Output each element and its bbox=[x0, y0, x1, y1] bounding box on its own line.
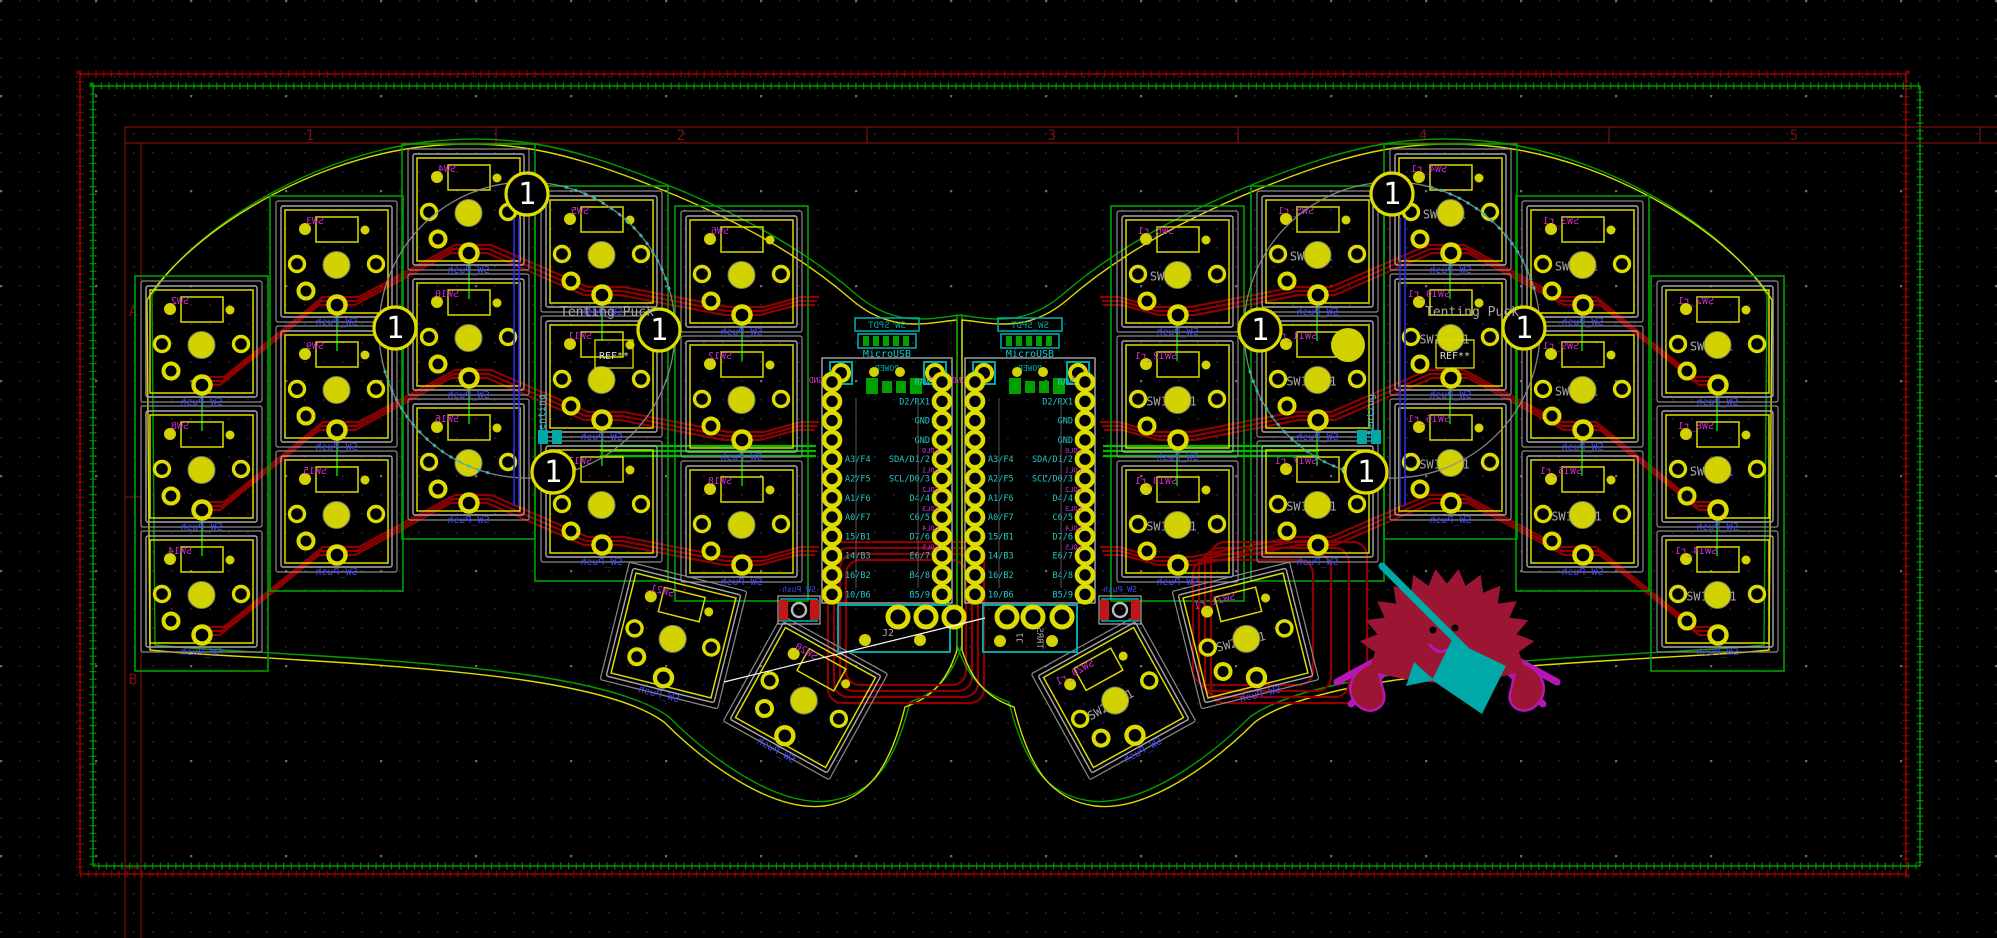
trrs-label: TRRS bbox=[1034, 627, 1044, 649]
key-ref-label: SW4_r1 bbox=[1411, 164, 1447, 175]
mcu-pin-label: E6/7 bbox=[910, 552, 930, 562]
key-ref-label: SW12 bbox=[708, 351, 732, 362]
tenting-puck-label: Tenting Puck bbox=[560, 305, 654, 320]
key-ref-label: SW10 bbox=[435, 289, 459, 300]
net-label: COL5 bbox=[922, 544, 939, 552]
net-label: COL4 bbox=[1065, 524, 1082, 532]
tenting-vertical-text: tenting bbox=[1366, 394, 1377, 436]
key-value-label: SW_Push bbox=[1296, 557, 1338, 568]
mcu-pin-label: GND bbox=[1058, 436, 1073, 446]
puck-hole-number: 1 bbox=[386, 311, 404, 346]
puck-mounting-hole[interactable]: 1 bbox=[506, 173, 548, 215]
microusb-label: MicroUSB bbox=[1006, 349, 1054, 360]
mcu-pin-label: A1/F6 bbox=[988, 494, 1014, 504]
key-ref-label: SW2 bbox=[171, 296, 189, 307]
tenting-puck-label: Tenting Puck bbox=[1425, 305, 1519, 320]
puck-mounting-hole[interactable]: 1 bbox=[1345, 451, 1387, 493]
mcu-pin-label: 15/B1 bbox=[845, 532, 871, 542]
net-label: COL1 bbox=[1065, 467, 1082, 475]
sheet-zone-number: 2 bbox=[677, 128, 685, 144]
key-ref-label: SW9_r1 bbox=[1543, 341, 1579, 352]
key-value-label: SW_Push bbox=[315, 567, 357, 578]
gnd-label: GND bbox=[809, 376, 824, 385]
mcu-pin-label: E6/7 bbox=[1053, 552, 1073, 562]
mcu-pin-label: 16/B2 bbox=[845, 571, 871, 581]
key-ref-label: SW4 bbox=[438, 164, 456, 175]
mcu-pin-label: RAW bbox=[915, 378, 931, 388]
key-value-label: SW_Push bbox=[580, 557, 622, 568]
key-value-label: SW_Push bbox=[180, 647, 222, 658]
mcu-pin-label: GND bbox=[915, 436, 930, 446]
reset-value-label: SW_Push bbox=[782, 585, 816, 594]
net-label: COL3 bbox=[922, 505, 939, 513]
mcu-pin-label: C6/5 bbox=[1053, 513, 1073, 523]
mcu-pin-label: GND bbox=[1058, 417, 1073, 427]
puck-hole-number: 1 bbox=[1383, 177, 1401, 212]
key-ref-label: SW8 bbox=[171, 421, 189, 432]
key-ref-label: SW18_r1 bbox=[1135, 476, 1177, 487]
mcu-pin-label: D2/RX1 bbox=[1042, 397, 1073, 407]
mcu-pin-label: D4/4 bbox=[910, 494, 930, 504]
mcu-pin-label: 14/B3 bbox=[988, 552, 1014, 562]
key-ref-label: SW5 bbox=[571, 206, 589, 217]
puck-mounting-hole[interactable]: 1 bbox=[532, 451, 574, 493]
net-label: COL2 bbox=[1065, 486, 1082, 494]
mcu-pin-label: 10/B6 bbox=[845, 590, 871, 600]
mcu-pin-label: SCL/D0/3 bbox=[1032, 475, 1073, 485]
mcu-pin-label: A0/F7 bbox=[988, 513, 1014, 523]
sheet-zone-number: 4 bbox=[1419, 128, 1427, 144]
puck-hole-number: 1 bbox=[1357, 455, 1375, 490]
net-label: COL1 bbox=[922, 467, 939, 475]
power-switch-label: SW_SPDT bbox=[867, 321, 906, 331]
tenting-vertical-text: tenting bbox=[537, 394, 548, 436]
j1-ref: J1 bbox=[1016, 633, 1026, 644]
sheet-row-letter: B bbox=[129, 672, 137, 688]
puck-hole-number: 1 bbox=[1251, 313, 1269, 348]
mcu-pin-label: SDA/D1/2 bbox=[889, 455, 930, 465]
net-label: COL0 bbox=[1065, 447, 1082, 455]
key-ref-label: SW8_r1 bbox=[1678, 421, 1714, 432]
key-ref-label: SW6 bbox=[711, 226, 729, 237]
sheet-zone-number: 5 bbox=[1790, 128, 1798, 144]
mcu-pin-label: RAW bbox=[1058, 378, 1074, 388]
mcu-pin-label: D4/4 bbox=[1053, 494, 1073, 504]
key-ref-label: SW15 bbox=[303, 466, 327, 477]
key-value-label: SW_Push bbox=[1696, 647, 1738, 658]
mcu-pin-label: B4/8 bbox=[1053, 571, 1073, 581]
key-ref-label: SW3 bbox=[306, 216, 324, 227]
sheet-zone-number: 1 bbox=[306, 128, 314, 144]
puck-mounting-hole[interactable]: 1 bbox=[1239, 309, 1281, 351]
key-ref-label: SW10_r1 bbox=[1408, 289, 1450, 300]
net-label: COL3 bbox=[1065, 505, 1082, 513]
mcu-pin-label: A3/F4 bbox=[845, 455, 871, 465]
mcu-pin-label: A3/F4 bbox=[988, 455, 1014, 465]
key-ref-label: SW3_r1 bbox=[1543, 216, 1579, 227]
mcu-pin-label: SCL/D0/3 bbox=[889, 475, 930, 485]
puck-hole-number: 1 bbox=[518, 177, 536, 212]
mcu-pin-label: A2/F5 bbox=[845, 475, 871, 485]
key-ref-label: SW17_r1 bbox=[1275, 456, 1317, 467]
mcu-pin-label: D7/6 bbox=[910, 532, 930, 542]
key-value-label: SW_Push bbox=[1561, 567, 1603, 578]
key-value-label: SW_Push bbox=[447, 515, 489, 526]
pcb-editor-canvas[interactable]: 12345ABSW2SW_PushSW8SW_PushSW14SW_PushSW… bbox=[0, 0, 1997, 938]
key-ref-label: SW15_r1 bbox=[1540, 466, 1582, 477]
mcu-pin-label: A1/F6 bbox=[845, 494, 871, 504]
key-ref-label: SW9 bbox=[306, 341, 324, 352]
net-label: COL5 bbox=[1065, 544, 1082, 552]
mcu-pin-label: A0/F7 bbox=[845, 513, 871, 523]
gnd-label: GND bbox=[952, 376, 967, 385]
key-ref-label: SW14 bbox=[168, 546, 192, 557]
mcu-pin-label: 15/B1 bbox=[988, 532, 1014, 542]
sheet-zone-number: 3 bbox=[1048, 128, 1056, 144]
key-ref-label: SW11 bbox=[568, 331, 592, 342]
tenting-puck-ref: REF** bbox=[1440, 351, 1470, 362]
key-ref-label: SW12_r1 bbox=[1135, 351, 1177, 362]
reset-value-label: SW_Push bbox=[1103, 585, 1137, 594]
mcu-pin-label: D7/6 bbox=[1053, 532, 1073, 542]
power-switch-label: SW_SPDT bbox=[1010, 321, 1049, 331]
mcu-pin-label: D2/RX1 bbox=[899, 397, 930, 407]
pcb-layout-drawing[interactable]: 12345ABSW2SW_PushSW8SW_PushSW14SW_PushSW… bbox=[0, 0, 1997, 938]
net-label: COL4 bbox=[922, 524, 939, 532]
mcu-pin-label: A2/F5 bbox=[988, 475, 1014, 485]
puck-mounting-hole[interactable]: 1 bbox=[1371, 173, 1413, 215]
key-ref-label: SW18 bbox=[708, 476, 732, 487]
mcu-pin-label: GND bbox=[915, 417, 930, 427]
key-ref-label: SW14_r1 bbox=[1675, 546, 1717, 557]
mcu-pin-label: B5/9 bbox=[910, 590, 930, 600]
key-ref-label: SW16 bbox=[435, 414, 459, 425]
mcu-pin-label: C6/5 bbox=[910, 513, 930, 523]
mcu-pin-label: 10/B6 bbox=[988, 590, 1014, 600]
key-ref-label: SW6_r1 bbox=[1138, 226, 1174, 237]
mcu-pin-label: B5/9 bbox=[1053, 590, 1073, 600]
net-label: COL0 bbox=[922, 447, 939, 455]
mcu-pin-label: B4/8 bbox=[910, 571, 930, 581]
j2-ref: J2 bbox=[882, 628, 894, 639]
key-ref-label: SW16_r1 bbox=[1408, 414, 1450, 425]
key-ref-label: SW2_r1 bbox=[1678, 296, 1714, 307]
mcu-pin-label: 14/B3 bbox=[845, 552, 871, 562]
key-value-label: SW_Push bbox=[1429, 515, 1471, 526]
sheet-row-letter: A bbox=[129, 304, 138, 320]
mcu-pin-label: 16/B2 bbox=[988, 571, 1014, 581]
puck-hole-number: 1 bbox=[544, 455, 562, 490]
puck-mounting-hole[interactable]: 1 bbox=[374, 307, 416, 349]
microusb-label: MicroUSB bbox=[863, 349, 911, 360]
tenting-puck-ref: REF** bbox=[599, 351, 629, 362]
mcu-pin-label: SDA/D1/2 bbox=[1032, 455, 1073, 465]
net-label: COL2 bbox=[922, 486, 939, 494]
